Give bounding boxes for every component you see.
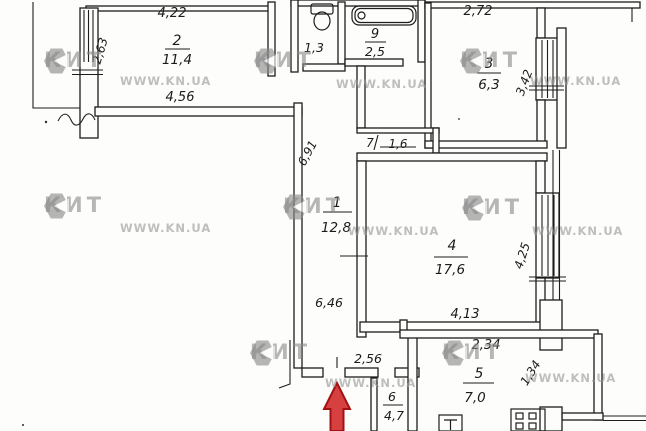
room4-number: 4 xyxy=(448,238,457,254)
dim-kitchen-right: 1,34 xyxy=(518,358,544,388)
floor-plan-drawing: 4,22 2 11,4 2,63 4,56 1,3 9 2,5 2,72 3 6… xyxy=(0,0,646,431)
closet-number: 7 xyxy=(366,136,374,150)
room6-number: 6 xyxy=(388,389,396,404)
room2-number: 2 xyxy=(173,33,182,49)
bathtub-icon xyxy=(352,6,416,25)
closet-area: 1,6 xyxy=(388,137,407,151)
room1-number: 1 xyxy=(333,195,342,211)
room6-area: 4,7 xyxy=(384,408,404,423)
room5-number: 5 xyxy=(475,366,484,382)
dim-room3-right: 3,42 xyxy=(513,68,535,98)
dim-kitchen-top: 2,34 xyxy=(472,338,501,353)
room2-area: 11,4 xyxy=(162,52,192,68)
dim-hall-bottom: 2,56 xyxy=(354,351,382,366)
wc-area: 1,3 xyxy=(304,40,324,55)
entrance-arrow-icon xyxy=(324,383,350,431)
scan-speckles xyxy=(22,118,460,426)
toilet-icon xyxy=(311,4,333,30)
floor-plan-scan: 4,22 2 11,4 2,63 4,56 1,3 9 2,5 2,72 3 6… xyxy=(0,0,646,431)
dim-room4-bottom: 4,13 xyxy=(451,307,480,322)
dim-corridor-bottom: 6,46 xyxy=(315,295,343,310)
room3-area: 6,3 xyxy=(478,77,499,93)
dim-room3-top: 2,72 xyxy=(464,4,493,19)
bath-number: 9 xyxy=(371,27,379,42)
dim-room4-right: 4,25 xyxy=(511,241,533,271)
room1-area: 12,8 xyxy=(321,220,351,236)
room3-number: 3 xyxy=(485,56,494,72)
room5-area: 7,0 xyxy=(464,390,485,406)
sink-icon xyxy=(439,415,462,431)
dim-room2-bottom: 4,56 xyxy=(166,90,195,105)
dim-room2-top: 4,22 xyxy=(158,6,187,21)
room4-area: 17,6 xyxy=(435,262,465,278)
bath-area: 2,5 xyxy=(365,44,385,59)
